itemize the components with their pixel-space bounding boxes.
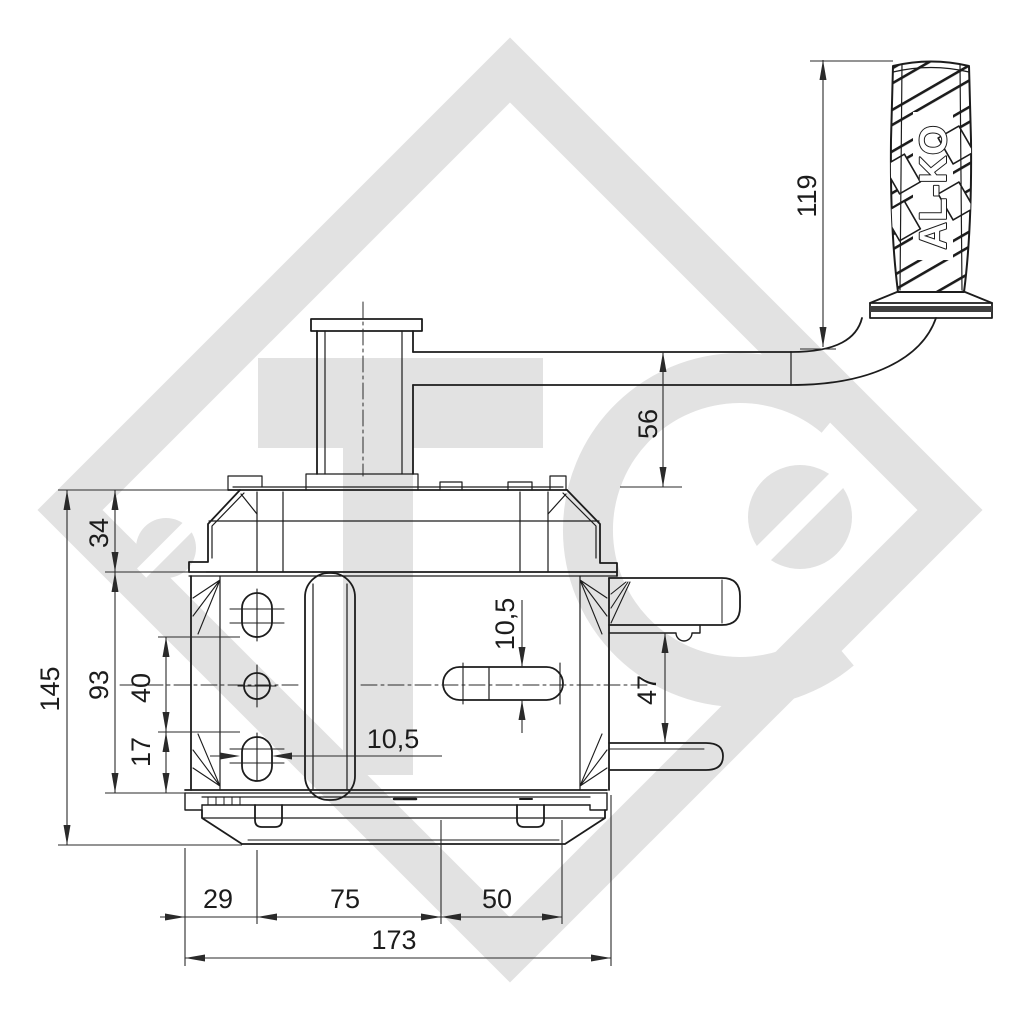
arrowhead-down (64, 825, 71, 845)
dim-text-47: 47 (632, 675, 662, 705)
dim-text-34: 34 (84, 518, 114, 548)
disc-dark-band (870, 306, 992, 312)
arrowhead-left (257, 914, 277, 921)
arrowhead-up (519, 700, 526, 720)
arrowhead-down (820, 327, 827, 347)
arrowhead-down (660, 467, 667, 487)
housing-top-details (440, 476, 566, 490)
crosshair-ticks (463, 663, 560, 704)
dim-text-145: 145 (35, 666, 65, 711)
slot-hole-right (443, 667, 563, 700)
dim-text-40: 40 (126, 673, 156, 703)
post-cap (311, 319, 422, 331)
arrowhead-right (220, 753, 240, 760)
watermark-circle-slash-left (136, 518, 196, 578)
dim-text-105-left: 10,5 (367, 724, 420, 754)
arrowhead-left (185, 955, 205, 962)
dim-text-119: 119 (792, 174, 822, 217)
dim-overall-height: 145 (35, 490, 71, 845)
watermark-circle-slash-right (748, 465, 852, 569)
housing-left-profile (189, 490, 240, 572)
dim-text-56: 56 (633, 409, 663, 439)
dim-text-17: 17 (126, 737, 156, 767)
housing-ledge (228, 476, 262, 490)
arrowhead-right (591, 955, 611, 962)
arrowhead-right (165, 914, 185, 921)
arrowhead-down (163, 773, 170, 793)
dim-text-105-right: 10,5 (490, 598, 520, 651)
disc-flares (870, 292, 992, 303)
bend-relief-fan (580, 734, 607, 786)
crank-grip: AL-KO (884, 62, 974, 293)
grip-brand-label: AL-KO (913, 124, 955, 249)
arrowhead-down (163, 712, 170, 732)
dim-text-93: 93 (84, 670, 114, 700)
dim-handle-length: 119 (792, 60, 827, 347)
dim-text-173: 173 (371, 925, 416, 955)
winch-dimension-drawing: AL-KO (0, 0, 1024, 1024)
dim-housing-and-plate-height: 34 93 (84, 490, 119, 793)
base-foot-left (255, 805, 282, 827)
dim-right-slot-height: 10,5 (490, 598, 526, 733)
dim-text-75: 75 (330, 884, 360, 914)
arrowhead-down (662, 723, 669, 743)
crosshair-ticks (230, 589, 284, 641)
dim-text-50: 50 (482, 884, 512, 914)
technical-drawing-page: AL-KO (0, 0, 1024, 1024)
base-foot-right (517, 805, 544, 827)
grip-base-disc (870, 292, 992, 318)
bend-relief-fan (193, 734, 220, 786)
arrowhead-left (421, 914, 441, 921)
arrowhead-up (163, 732, 170, 752)
dim-hole-spacings: 40 17 (126, 637, 170, 793)
arrowhead-up (660, 352, 667, 372)
dim-text-29: 29 (203, 884, 233, 914)
base-hatch-ticks (208, 797, 240, 805)
arrowhead-up (820, 60, 827, 80)
arrowhead-down (112, 773, 119, 793)
